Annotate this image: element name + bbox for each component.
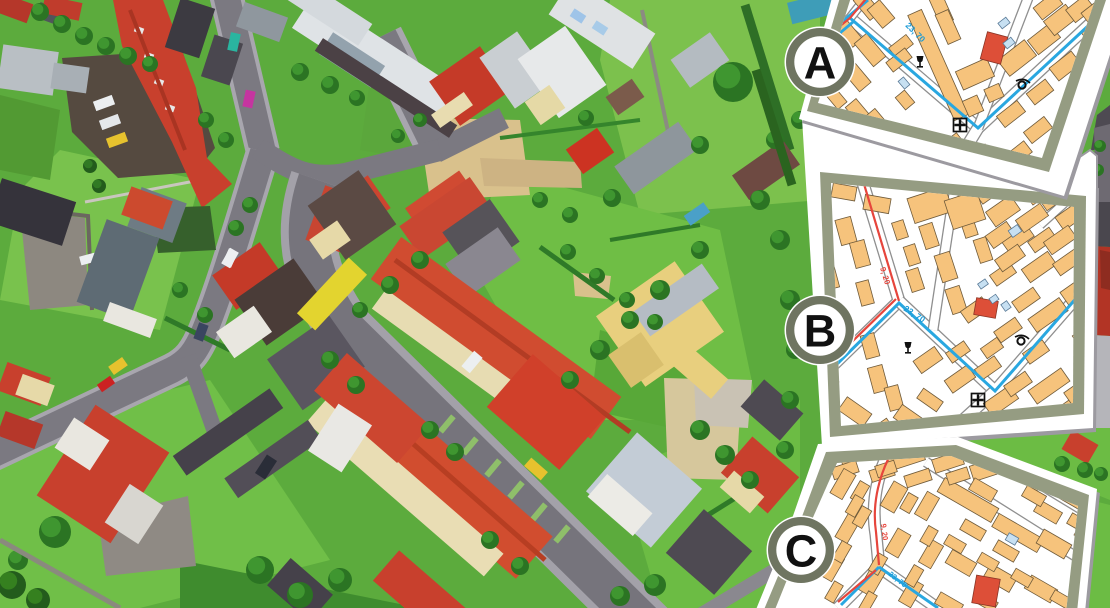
svg-text:A: A xyxy=(804,38,837,89)
svg-text:C: C xyxy=(785,526,818,577)
svg-text:B: B xyxy=(804,306,837,357)
